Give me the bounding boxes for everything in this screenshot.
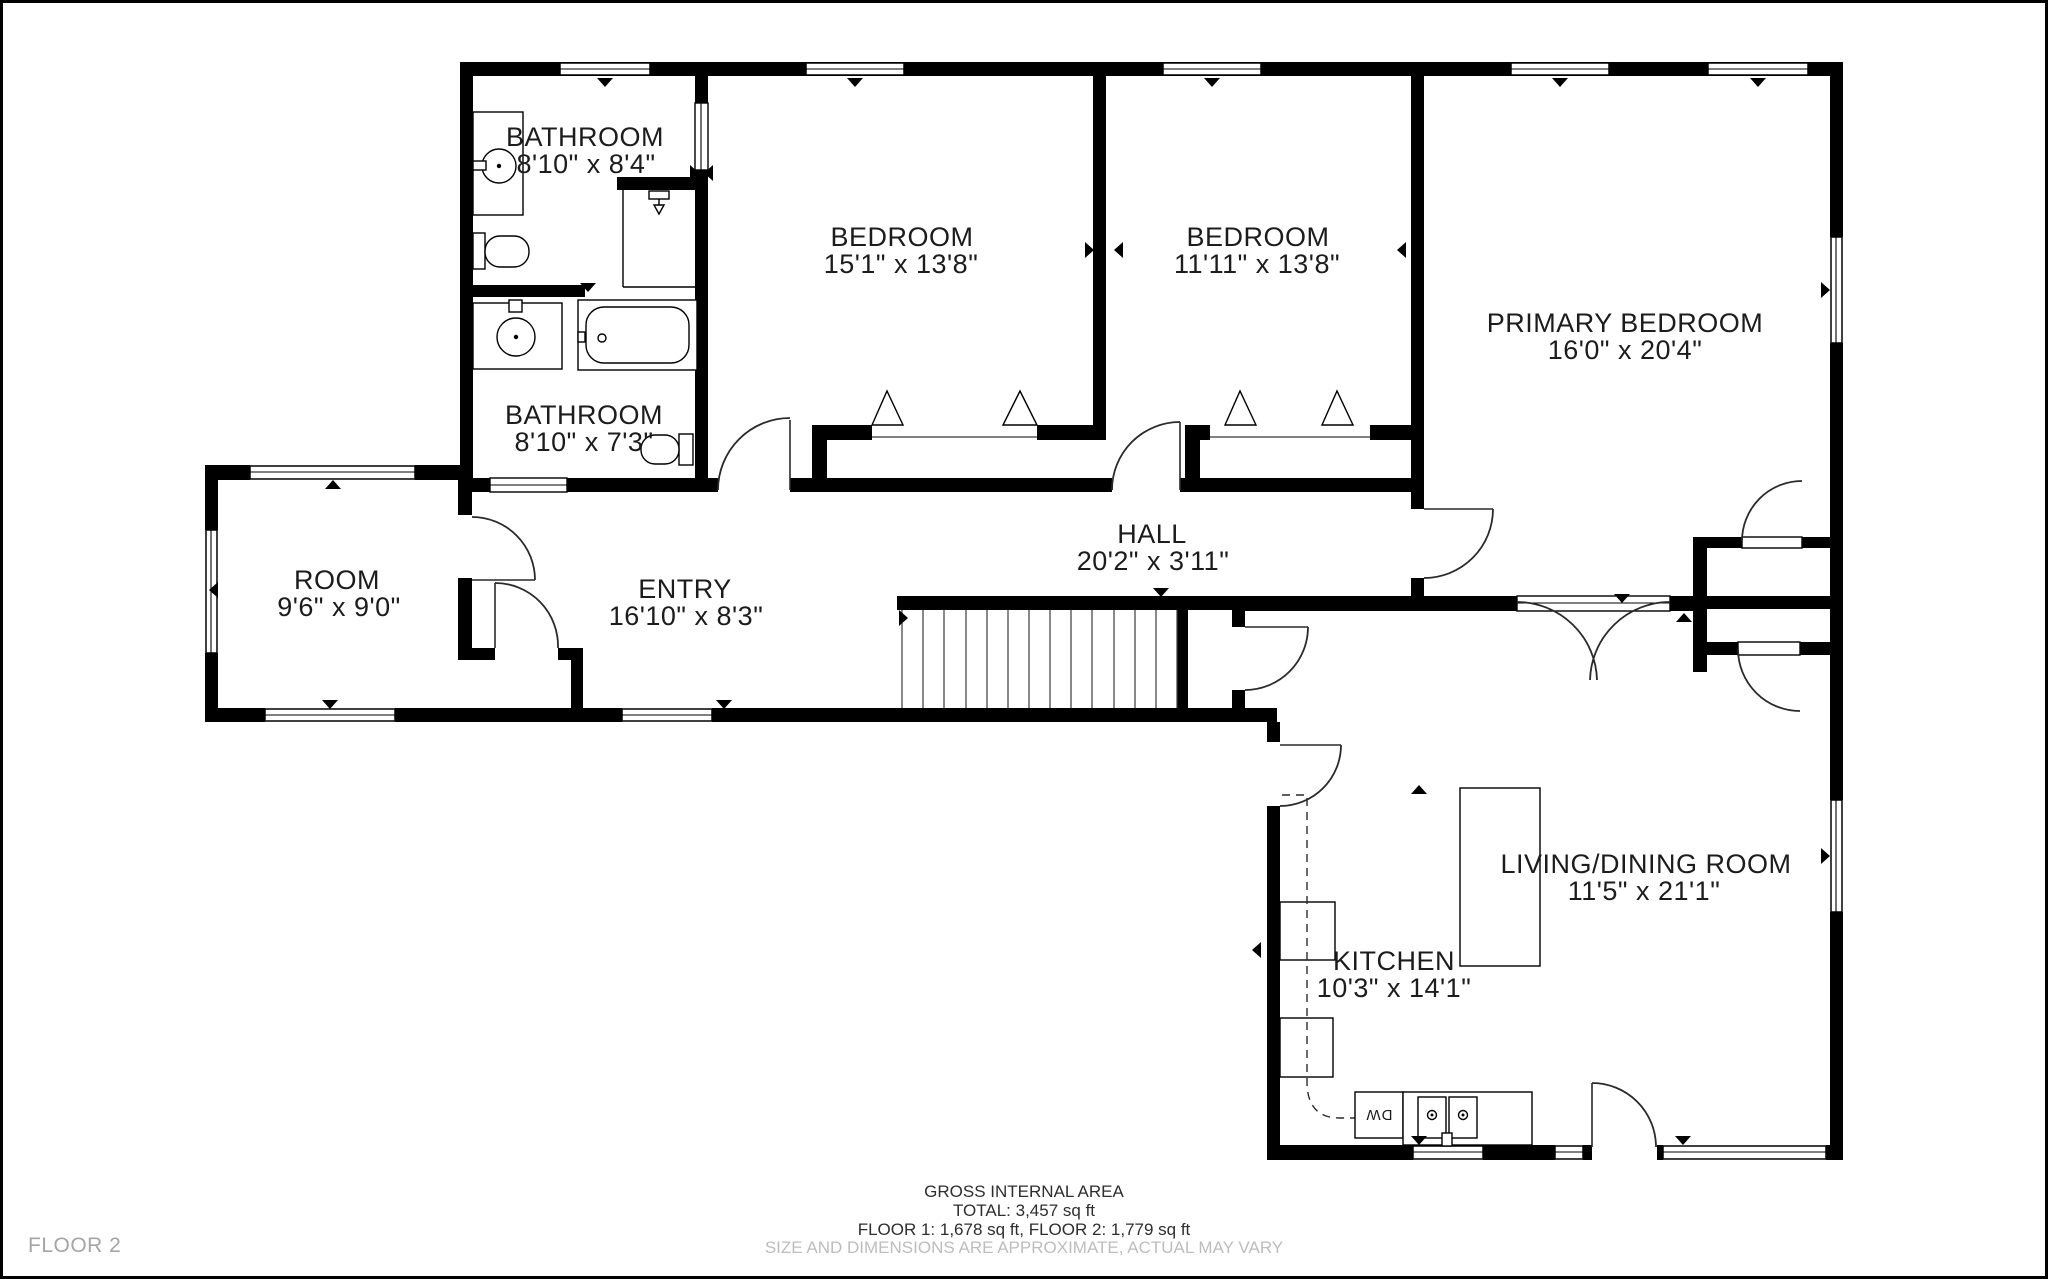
wall [695, 62, 708, 107]
closet-rod-triangle [1322, 391, 1353, 425]
footer-floor-areas: FLOOR 1: 1,678 sq ft, FLOOR 2: 1,779 sq … [858, 1220, 1191, 1239]
wall [1583, 1145, 1592, 1160]
room-label-name: PRIMARY BEDROOM [1487, 308, 1764, 338]
sink-faucet [1442, 1133, 1452, 1146]
door-leaf [1738, 642, 1800, 655]
room-label-dims: 20'2" x 3'11" [1077, 546, 1230, 576]
direction-marker [325, 480, 341, 489]
room-label-dims: 9'6" x 9'0" [277, 592, 401, 622]
room-label-name: KITCHEN [1333, 946, 1455, 976]
closet-rod-triangle [1225, 391, 1256, 425]
wall [1693, 642, 1738, 655]
wall [460, 62, 1843, 76]
room-label-name: BATHROOM [505, 400, 663, 430]
footer-total: TOTAL: 3,457 sq ft [953, 1201, 1095, 1220]
wall [712, 708, 1277, 722]
shower-head-icon [649, 191, 669, 199]
dishwasher-label: DW [1366, 1106, 1393, 1123]
wall [1370, 425, 1411, 440]
direction-marker [716, 700, 732, 709]
room-label-dims: 11'5" x 21'1" [1568, 876, 1721, 906]
floorplan-canvas: BATHROOM 8'10" x 8'4" BATHROOM 8'10" x 7… [0, 0, 2048, 1279]
floor-number-label: FLOOR 2 [28, 1234, 121, 1257]
door-arc [472, 517, 535, 580]
toilet-tank [473, 233, 485, 269]
room-label-name: HALL [1117, 519, 1187, 549]
direction-marker [1252, 942, 1261, 958]
wall [1830, 62, 1843, 237]
direction-marker [1114, 242, 1123, 258]
room-label-name: BEDROOM [1186, 222, 1329, 252]
bathtub-icon [586, 307, 689, 363]
direction-marker [1411, 785, 1427, 794]
direction-marker [1821, 848, 1830, 864]
room-label-dims: 10'3" x 14'1" [1317, 973, 1472, 1003]
direction-marker [1204, 78, 1220, 87]
wall [1185, 425, 1210, 440]
direction-marker [322, 700, 338, 709]
door-arc [1738, 649, 1800, 711]
direction-marker [899, 610, 908, 626]
wall [395, 708, 622, 722]
wall [1232, 610, 1245, 627]
room-label-name: BEDROOM [830, 222, 973, 252]
sink-basin [1449, 1097, 1477, 1138]
wall [1657, 1145, 1663, 1160]
direction-marker [1397, 242, 1406, 258]
bathtub-faucet [578, 332, 585, 342]
sink-faucet [509, 300, 522, 312]
labels-layer: BATHROOM 8'10" x 8'4" BATHROOM 8'10" x 7… [277, 122, 1791, 1123]
room-label-dims: 8'10" x 8'4" [516, 149, 655, 179]
door-leaf [1742, 537, 1802, 548]
wall [460, 285, 585, 297]
wall [812, 440, 827, 478]
wall [1411, 62, 1424, 509]
door-arc [495, 583, 558, 648]
door-arc [1245, 627, 1308, 690]
room-label-name: BATHROOM [506, 122, 664, 152]
sink-drain [514, 335, 518, 339]
room-label-name: ROOM [294, 565, 380, 595]
direction-marker [1675, 1136, 1691, 1145]
wall [1177, 610, 1188, 708]
direction-marker [1153, 588, 1169, 597]
wall [1267, 722, 1280, 742]
wall [1830, 912, 1843, 1145]
room-label-dims: 11'11" x 13'8" [1174, 249, 1340, 279]
direction-marker [1085, 242, 1094, 258]
page-border [2, 2, 2047, 1278]
door-arc [1742, 481, 1802, 541]
wall [571, 648, 583, 708]
sink-faucet [473, 161, 486, 170]
wall [1830, 343, 1843, 800]
door-arc [1592, 1083, 1656, 1147]
footer-disclaimer: SIZE AND DIMENSIONS ARE APPROXIMATE, ACT… [765, 1238, 1283, 1257]
wall [458, 648, 495, 660]
door-arc [1590, 602, 1670, 680]
closet-rod-triangle [1003, 391, 1037, 425]
room-label-dims: 8'10" x 7'3" [514, 427, 653, 457]
sink-basin [1418, 1097, 1446, 1138]
wall [415, 465, 460, 480]
footer-gross-area-title: GROSS INTERNAL AREA [924, 1182, 1124, 1201]
door-arc [1517, 602, 1597, 680]
wall [1267, 806, 1280, 1145]
sink-drain [497, 164, 501, 168]
direction-marker [1552, 78, 1568, 87]
door-arc [718, 418, 790, 490]
wall [897, 596, 1245, 610]
wall [1232, 596, 1517, 611]
sink-faucet [1431, 1114, 1434, 1117]
door-arc [1280, 745, 1341, 806]
door-arc [1112, 422, 1180, 490]
wall [1802, 537, 1830, 548]
room-label-dims: 16'0" x 20'4" [1548, 335, 1703, 365]
wall [1037, 425, 1093, 440]
room-label-name: LIVING/DINING ROOM [1500, 849, 1791, 879]
direction-marker [1676, 613, 1692, 622]
wall [1180, 478, 1424, 492]
toilet-bowl [485, 236, 529, 267]
direction-marker [1821, 282, 1830, 298]
toilet-tank [679, 434, 693, 465]
wall [458, 465, 472, 515]
direction-marker [1750, 78, 1766, 87]
wall [1483, 1145, 1555, 1160]
wall [1185, 440, 1200, 478]
wall [205, 653, 218, 722]
wall [812, 425, 872, 440]
wall [1267, 1145, 1413, 1160]
sink-faucet [1462, 1114, 1465, 1117]
wall [1693, 537, 1742, 548]
staircase [902, 610, 1177, 708]
wall [458, 578, 472, 648]
wall [790, 478, 1112, 492]
footer: GROSS INTERNAL AREA TOTAL: 3,457 sq ft F… [765, 1182, 1283, 1257]
wall [1693, 596, 1830, 609]
wall [460, 62, 473, 490]
shower-head-icon [654, 205, 664, 214]
room-label-dims: 16'10" x 8'3" [609, 601, 764, 631]
room-label-dims: 15'1" x 13'8" [824, 249, 979, 279]
closet-rod-triangle [872, 391, 903, 425]
room-label-name: ENTRY [638, 574, 732, 604]
wall [1826, 1145, 1843, 1160]
door-arc [1424, 509, 1493, 578]
direction-marker [847, 78, 863, 87]
wall [1093, 62, 1106, 440]
wall [205, 465, 218, 530]
direction-marker [597, 78, 613, 87]
wall [1800, 642, 1830, 655]
floor-plan: BATHROOM 8'10" x 8'4" BATHROOM 8'10" x 7… [0, 0, 2048, 1279]
